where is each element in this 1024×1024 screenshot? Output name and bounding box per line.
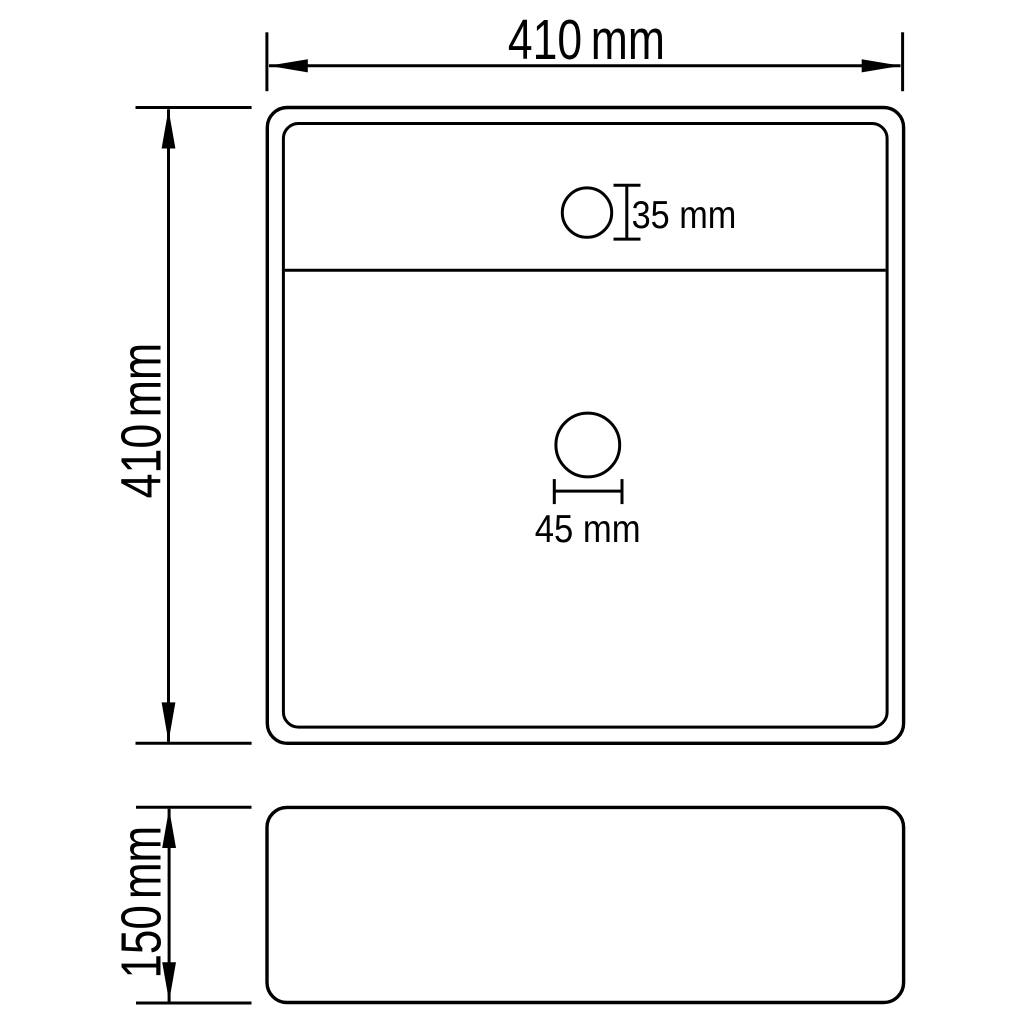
svg-text:35 mm: 35 mm — [632, 193, 737, 236]
svg-text:45 mm: 45 mm — [535, 507, 641, 550]
